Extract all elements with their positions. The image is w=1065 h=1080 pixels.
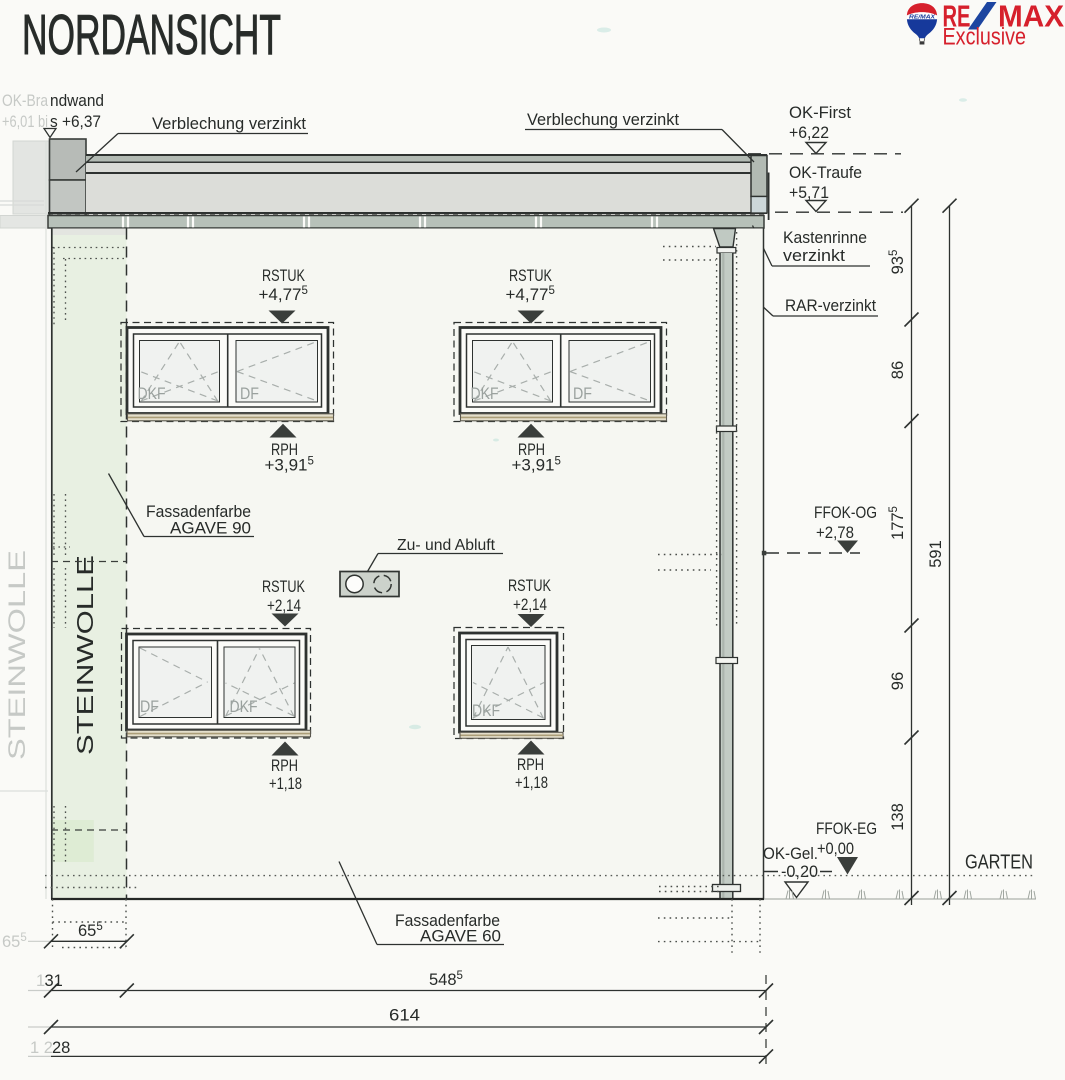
svg-text:RPH: RPH xyxy=(271,756,298,775)
svg-text:28: 28 xyxy=(52,1039,70,1057)
svg-text:RSTUK: RSTUK xyxy=(262,577,305,596)
svg-text:DF: DF xyxy=(140,698,159,716)
svg-text:DKF: DKF xyxy=(471,385,499,403)
svg-text:RPH: RPH xyxy=(517,755,544,774)
svg-text:RSTUK: RSTUK xyxy=(509,266,552,285)
svg-text:s +6,37: s +6,37 xyxy=(50,112,101,131)
svg-text:Verblechung verzinkt: Verblechung verzinkt xyxy=(527,110,679,129)
svg-text:DF: DF xyxy=(240,385,259,403)
svg-text:STEINWOLLE: STEINWOLLE xyxy=(4,550,31,760)
svg-text:+2,78: +2,78 xyxy=(816,523,854,542)
svg-text:RAR-verzinkt: RAR-verzinkt xyxy=(785,296,876,315)
svg-text:OK-Traufe: OK-Traufe xyxy=(789,163,862,182)
svg-text:STEINWOLLE: STEINWOLLE xyxy=(72,555,98,755)
svg-text:1 2: 1 2 xyxy=(30,1039,53,1057)
svg-text:ndwand: ndwand xyxy=(50,91,104,110)
svg-text:138: 138 xyxy=(889,803,907,831)
svg-text:+2,14: +2,14 xyxy=(267,596,301,615)
svg-text:+3,915: +3,915 xyxy=(512,456,561,475)
svg-text:AGAVE 60: AGAVE 60 xyxy=(420,927,501,946)
svg-text:FFOK-EG: FFOK-EG xyxy=(816,819,877,838)
svg-text:86: 86 xyxy=(889,361,907,379)
svg-text:verzinkt: verzinkt xyxy=(783,246,845,265)
svg-text:AGAVE 90: AGAVE 90 xyxy=(170,519,251,538)
svg-text:614: 614 xyxy=(389,1007,420,1025)
svg-text:+5,71: +5,71 xyxy=(789,183,829,202)
svg-text:Kastenrinne: Kastenrinne xyxy=(783,228,867,247)
svg-text:96: 96 xyxy=(889,672,907,690)
svg-text:+1,18: +1,18 xyxy=(515,773,548,792)
svg-text:+6,22: +6,22 xyxy=(789,123,829,142)
svg-text:591: 591 xyxy=(927,540,945,568)
svg-text:GARTEN: GARTEN xyxy=(965,852,1033,874)
svg-text:Verblechung verzinkt: Verblechung verzinkt xyxy=(152,114,306,133)
svg-text:+4,775: +4,775 xyxy=(506,285,555,304)
svg-text:DKF: DKF xyxy=(472,702,500,720)
svg-text:Zu- und Abluft: Zu- und Abluft xyxy=(397,537,496,554)
svg-text:-0,20: -0,20 xyxy=(781,862,818,881)
svg-text:FFOK-OG: FFOK-OG xyxy=(814,503,877,522)
svg-text:+0,00: +0,00 xyxy=(817,839,854,858)
svg-text:Exclusive: Exclusive xyxy=(943,24,1027,51)
svg-text:RE/MAX: RE/MAX xyxy=(909,15,937,21)
svg-text:OK-Bra: OK-Bra xyxy=(2,91,48,110)
svg-text:DKF: DKF xyxy=(230,698,258,716)
svg-text:OK-Gel.: OK-Gel. xyxy=(763,844,818,863)
svg-text:NORDANSICHT: NORDANSICHT xyxy=(22,3,281,67)
svg-text:31: 31 xyxy=(45,972,63,990)
svg-text:RSTUK: RSTUK xyxy=(262,266,305,285)
svg-text:+3,915: +3,915 xyxy=(265,456,314,475)
svg-text:+4,775: +4,775 xyxy=(259,285,308,304)
svg-text:DKF: DKF xyxy=(138,385,166,403)
svg-text:OK-First: OK-First xyxy=(789,103,851,122)
svg-text:RSTUK: RSTUK xyxy=(508,576,551,595)
svg-text:+2,14: +2,14 xyxy=(513,595,547,614)
svg-text:+6,01 bi: +6,01 bi xyxy=(2,112,48,131)
svg-text:+1,18: +1,18 xyxy=(269,774,302,793)
svg-text:DF: DF xyxy=(573,385,592,403)
